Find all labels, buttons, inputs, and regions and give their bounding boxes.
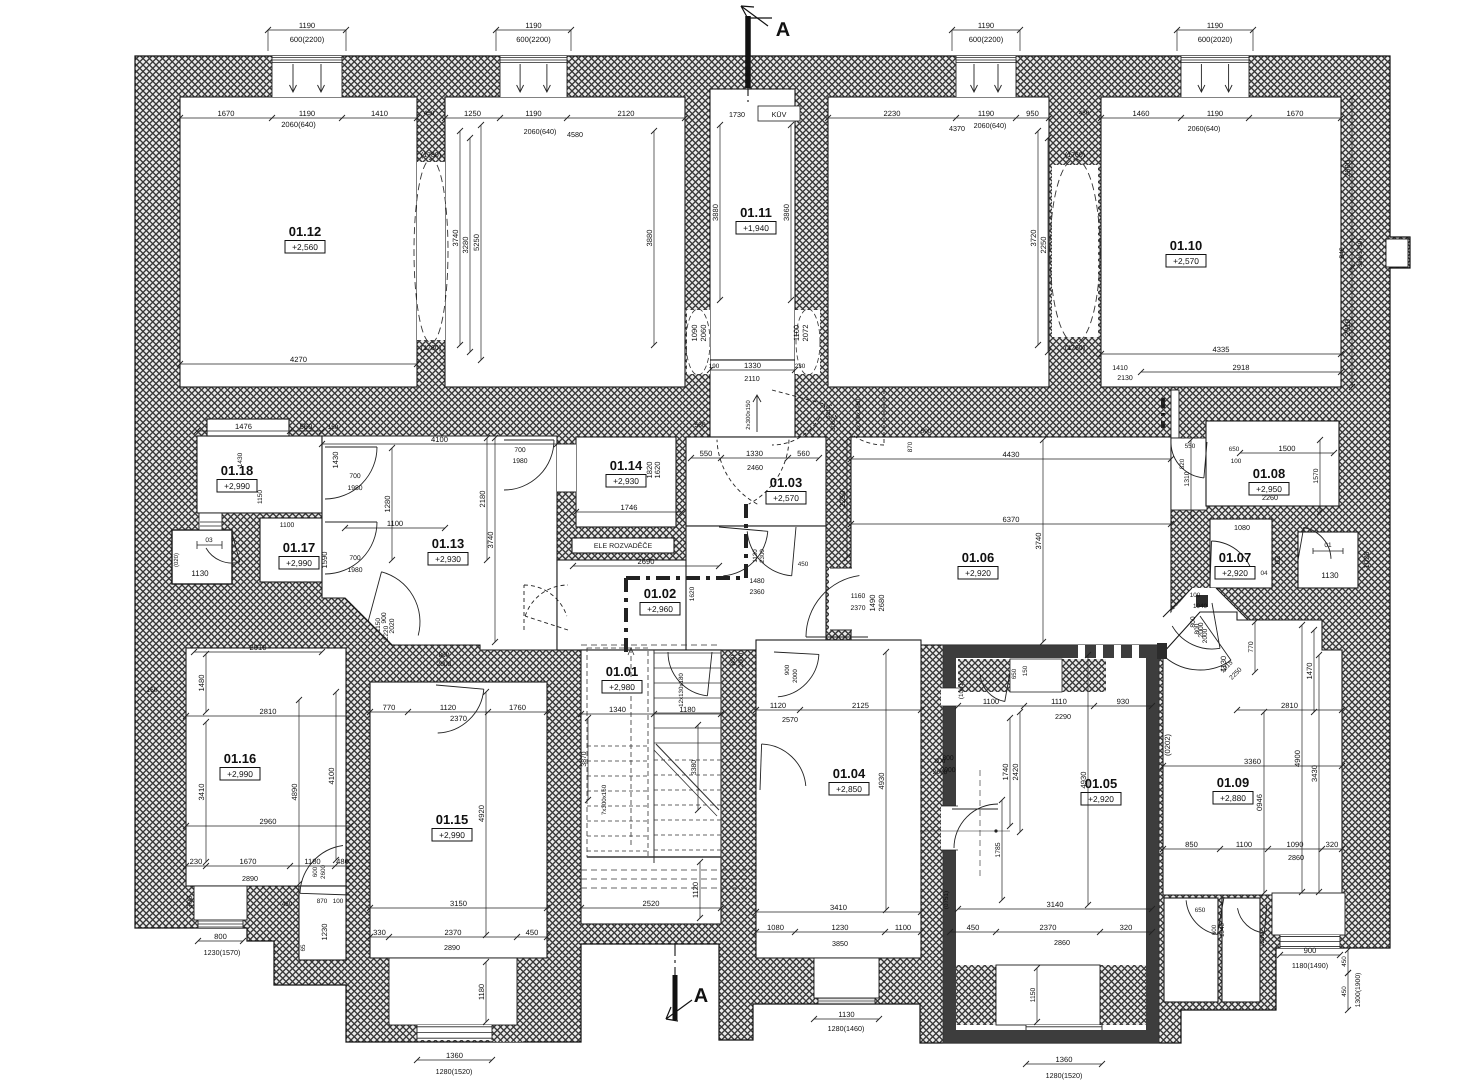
svg-text:+2,920: +2,920 — [1088, 794, 1114, 804]
svg-text:+2,980: +2,980 — [609, 682, 635, 692]
svg-text:3360: 3360 — [1244, 757, 1261, 766]
svg-text:(0202): (0202) — [1163, 734, 1172, 756]
svg-text:850: 850 — [1185, 840, 1198, 849]
svg-text:01.02: 01.02 — [644, 586, 677, 601]
svg-text:2460: 2460 — [747, 463, 763, 472]
svg-text:330: 330 — [373, 928, 386, 937]
svg-text:2918: 2918 — [1233, 363, 1250, 372]
svg-text:2060: 2060 — [699, 325, 708, 342]
svg-text:6370: 6370 — [1003, 515, 1020, 524]
svg-text:1100: 1100 — [280, 522, 295, 529]
svg-text:1310: 1310 — [1184, 471, 1191, 486]
svg-text:190: 190 — [709, 363, 720, 370]
svg-text:4370: 4370 — [949, 124, 965, 133]
svg-text:1330: 1330 — [746, 449, 763, 458]
svg-text:3850: 3850 — [832, 939, 848, 948]
svg-text:2000: 2000 — [792, 669, 799, 683]
svg-text:3740: 3740 — [486, 532, 495, 549]
svg-text:900: 900 — [1304, 946, 1317, 955]
svg-text:150: 150 — [147, 687, 158, 694]
svg-text:1740: 1740 — [1001, 764, 1010, 781]
svg-text:+2,880: +2,880 — [1220, 793, 1246, 803]
svg-text:1090: 1090 — [1287, 840, 1304, 849]
svg-text:950: 950 — [1026, 109, 1039, 118]
svg-text:1280: 1280 — [383, 496, 392, 513]
svg-text:01.14: 01.14 — [610, 458, 643, 473]
svg-text:(1760): (1760) — [1065, 344, 1085, 352]
svg-text:2060(640): 2060(640) — [281, 120, 316, 129]
svg-text:+2,930: +2,930 — [435, 554, 461, 564]
svg-text:1180(1490): 1180(1490) — [1292, 961, 1328, 970]
svg-text:4100: 4100 — [431, 435, 448, 444]
svg-text:6210: 6210 — [825, 405, 832, 419]
svg-text:2290: 2290 — [1055, 712, 1071, 721]
svg-text:1190: 1190 — [978, 109, 994, 118]
svg-text:4270: 4270 — [290, 355, 307, 364]
svg-text:1100: 1100 — [983, 697, 999, 706]
svg-text:450: 450 — [282, 901, 293, 908]
svg-text:800: 800 — [935, 758, 946, 765]
svg-text:1120: 1120 — [770, 701, 786, 710]
svg-text:1180: 1180 — [304, 857, 320, 866]
svg-text:1940: 1940 — [1193, 603, 1208, 610]
svg-text:0946: 0946 — [1255, 794, 1264, 811]
svg-text:3720: 3720 — [1029, 230, 1038, 247]
svg-text:100: 100 — [1231, 458, 1242, 465]
svg-text:770: 770 — [383, 703, 396, 712]
svg-text:+2,570: +2,570 — [1173, 256, 1199, 266]
svg-text:2120: 2120 — [618, 109, 635, 118]
svg-text:2000: 2000 — [437, 661, 452, 668]
svg-text:1190: 1190 — [1207, 109, 1223, 118]
svg-text:(1780): (1780) — [421, 151, 441, 159]
svg-text:4900: 4900 — [1293, 750, 1302, 767]
svg-text:2600: 2600 — [1343, 160, 1352, 177]
svg-text:1180: 1180 — [477, 984, 486, 1000]
svg-text:150: 150 — [1022, 665, 1029, 676]
svg-text:1110: 1110 — [1051, 697, 1067, 706]
svg-text:3880: 3880 — [711, 204, 720, 221]
svg-text:3740: 3740 — [451, 230, 460, 247]
svg-text:3410: 3410 — [830, 903, 847, 912]
svg-text:1360: 1360 — [446, 1051, 463, 1060]
svg-text:4430: 4430 — [1003, 450, 1020, 459]
svg-text:1080: 1080 — [1234, 523, 1250, 532]
svg-text:+2,570: +2,570 — [773, 493, 799, 503]
svg-text:2420: 2420 — [1011, 764, 1020, 781]
svg-text:1980: 1980 — [347, 485, 362, 492]
svg-text:01.07: 01.07 — [1219, 550, 1252, 565]
svg-text:550: 550 — [1185, 443, 1196, 450]
svg-text:1280: 1280 — [1259, 933, 1266, 948]
svg-text:1280(1520): 1280(1520) — [436, 1067, 473, 1076]
svg-text:150: 150 — [328, 424, 339, 431]
svg-text:+2,990: +2,990 — [224, 481, 250, 491]
svg-text:03: 03 — [205, 537, 213, 544]
svg-text:650: 650 — [1011, 668, 1018, 679]
svg-text:1940: 1940 — [1219, 923, 1226, 938]
svg-text:450: 450 — [798, 561, 809, 568]
svg-text:+2,930: +2,930 — [613, 476, 639, 486]
svg-text:(1780): (1780) — [421, 344, 441, 352]
svg-text:1100: 1100 — [387, 519, 403, 528]
svg-text:1620: 1620 — [689, 586, 696, 601]
svg-text:1280(1520): 1280(1520) — [1046, 1071, 1083, 1080]
svg-text:2370: 2370 — [450, 714, 467, 723]
svg-text:320: 320 — [1120, 923, 1133, 932]
svg-text:3380: 3380 — [691, 760, 698, 775]
svg-text:2060(640): 2060(640) — [1188, 124, 1221, 133]
svg-text:3280: 3280 — [461, 237, 470, 254]
svg-text:1730: 1730 — [729, 110, 745, 119]
svg-text:KÜV: KÜV — [772, 110, 787, 119]
svg-text:04: 04 — [1260, 570, 1268, 577]
svg-text:2690: 2690 — [638, 557, 655, 566]
svg-text:3060: 3060 — [830, 417, 837, 431]
svg-text:2x300x150: 2x300x150 — [745, 400, 752, 430]
svg-text:450: 450 — [967, 923, 980, 932]
svg-text:4930: 4930 — [877, 773, 886, 790]
svg-text:2010: 2010 — [250, 643, 267, 652]
svg-text:01.06: 01.06 — [962, 550, 995, 565]
svg-text:4930: 4930 — [1079, 772, 1088, 789]
svg-text:450: 450 — [1341, 986, 1348, 997]
svg-text:900: 900 — [381, 612, 388, 624]
svg-text:100: 100 — [1190, 592, 1201, 599]
svg-text:4890: 4890 — [290, 784, 299, 801]
svg-text:3860: 3860 — [782, 204, 791, 221]
svg-text:1190: 1190 — [299, 109, 315, 118]
svg-text:1480: 1480 — [749, 578, 764, 585]
svg-text:4335: 4335 — [1213, 345, 1230, 354]
svg-text:550: 550 — [700, 449, 713, 458]
svg-text:1120: 1120 — [691, 882, 700, 898]
svg-text:1670: 1670 — [218, 109, 235, 118]
svg-text:2060(640): 2060(640) — [524, 127, 557, 136]
svg-text:1330: 1330 — [744, 361, 761, 370]
svg-text:1230: 1230 — [832, 923, 849, 932]
svg-text:840: 840 — [1339, 247, 1346, 259]
svg-text:2960: 2960 — [260, 817, 277, 826]
svg-text:65: 65 — [300, 944, 307, 952]
svg-text:1785: 1785 — [995, 842, 1002, 857]
svg-text:1150: 1150 — [257, 490, 264, 504]
svg-text:1100: 1100 — [792, 325, 801, 341]
svg-text:+2,990: +2,990 — [286, 558, 312, 568]
svg-text:(1760): (1760) — [1065, 151, 1085, 159]
svg-text:770: 770 — [1248, 641, 1255, 653]
svg-text:2230: 2230 — [884, 109, 901, 118]
svg-text:320: 320 — [1326, 840, 1339, 849]
svg-text:930: 930 — [1117, 697, 1130, 706]
svg-text:+2,960: +2,960 — [647, 604, 673, 614]
svg-text:3150: 3150 — [450, 899, 467, 908]
svg-text:01.04: 01.04 — [833, 766, 866, 781]
svg-text:1190: 1190 — [525, 109, 541, 118]
svg-text:800: 800 — [1190, 616, 1197, 628]
svg-text:2110: 2110 — [744, 374, 759, 383]
svg-text:2000: 2000 — [933, 769, 948, 776]
svg-text:100: 100 — [333, 898, 344, 905]
svg-text:700: 700 — [349, 555, 361, 562]
svg-text:2220: 2220 — [383, 625, 390, 640]
svg-text:7x300x150: 7x300x150 — [601, 784, 608, 815]
svg-text:3870: 3870 — [581, 751, 588, 766]
svg-text:2370: 2370 — [1040, 923, 1057, 932]
svg-text:360(1730): 360(1730) — [1357, 239, 1364, 268]
svg-text:1480: 1480 — [197, 675, 206, 692]
svg-text:2370: 2370 — [850, 605, 865, 612]
svg-text:1460: 1460 — [1133, 109, 1150, 118]
svg-text:1430: 1430 — [331, 452, 340, 469]
svg-text:1410: 1410 — [371, 109, 388, 118]
svg-text:800: 800 — [439, 652, 450, 659]
svg-text:1340: 1340 — [609, 705, 626, 714]
svg-text:1410: 1410 — [1112, 365, 1128, 372]
svg-text:01.13: 01.13 — [432, 536, 465, 551]
svg-text:600(2020): 600(2020) — [1198, 35, 1233, 44]
svg-text:2860: 2860 — [1054, 938, 1070, 947]
svg-text:2000: 2000 — [1198, 622, 1205, 637]
svg-text:2250: 2250 — [838, 491, 847, 508]
svg-text:1300(1900): 1300(1900) — [1355, 973, 1362, 1008]
svg-text:1980: 1980 — [512, 458, 527, 465]
svg-text:+2,560: +2,560 — [292, 242, 318, 252]
svg-text:2360: 2360 — [749, 589, 764, 596]
svg-text:5250: 5250 — [472, 234, 481, 251]
svg-text:ELE ROZVADĚČE: ELE ROZVADĚČE — [594, 541, 653, 550]
svg-text:(020): (020) — [173, 553, 180, 567]
svg-text:2810: 2810 — [1281, 701, 1298, 710]
svg-text:3740: 3740 — [1034, 533, 1043, 550]
svg-text:700: 700 — [514, 447, 526, 454]
svg-text:12x130x180: 12x130x180 — [678, 673, 685, 707]
svg-text:+2,990: +2,990 — [227, 769, 253, 779]
svg-text:560: 560 — [694, 422, 706, 429]
svg-text:650: 650 — [1195, 907, 1206, 914]
svg-text:01.16: 01.16 — [224, 751, 257, 766]
svg-text:2520: 2520 — [643, 899, 660, 908]
svg-text:1360: 1360 — [1056, 1055, 1073, 1064]
svg-text:600(2200): 600(2200) — [516, 35, 551, 44]
svg-text:4580: 4580 — [567, 130, 583, 139]
svg-text:600(2200): 600(2200) — [290, 35, 325, 44]
svg-text:(0751): (0751) — [943, 891, 950, 909]
svg-text:01.15: 01.15 — [436, 812, 469, 827]
svg-text:1130: 1130 — [191, 569, 209, 578]
svg-text:230: 230 — [795, 363, 806, 370]
svg-text:1120: 1120 — [440, 703, 456, 712]
svg-text:2890: 2890 — [242, 874, 258, 883]
svg-text:1100: 1100 — [1236, 840, 1252, 849]
svg-text:+2,850: +2,850 — [836, 784, 862, 794]
svg-text:2130: 2130 — [1117, 375, 1133, 382]
svg-text:870: 870 — [907, 441, 914, 452]
svg-text:2020: 2020 — [389, 618, 396, 633]
svg-text:1190: 1190 — [299, 21, 315, 30]
svg-text:2570: 2570 — [782, 715, 798, 724]
svg-text:450: 450 — [424, 110, 435, 117]
svg-text:A: A — [694, 985, 708, 1007]
svg-text:A: A — [776, 19, 790, 41]
svg-text:870: 870 — [317, 898, 328, 905]
svg-text:900: 900 — [784, 664, 791, 675]
svg-text:1130: 1130 — [752, 549, 759, 563]
svg-text:230: 230 — [190, 857, 203, 866]
svg-text:1620: 1620 — [653, 462, 662, 479]
svg-text:1670: 1670 — [240, 857, 257, 866]
svg-text:2250: 2250 — [1039, 237, 1048, 254]
svg-text:+2,990: +2,990 — [439, 830, 465, 840]
svg-text:01.17: 01.17 — [283, 540, 316, 555]
svg-text:450: 450 — [526, 928, 539, 937]
svg-text:1760: 1760 — [509, 703, 526, 712]
svg-text:1100: 1100 — [895, 923, 911, 932]
svg-text:820: 820 — [1179, 458, 1186, 469]
svg-text:3880: 3880 — [645, 230, 654, 247]
svg-text:1500: 1500 — [1279, 444, 1296, 453]
svg-text:+2,920: +2,920 — [965, 568, 991, 578]
svg-text:02: 02 — [1273, 556, 1282, 564]
svg-text:1570: 1570 — [1313, 468, 1320, 483]
svg-text:2010: 2010 — [1343, 319, 1352, 336]
svg-text:1980: 1980 — [347, 567, 362, 574]
svg-text:1230(1570): 1230(1570) — [204, 948, 241, 957]
svg-text:(1061): (1061) — [958, 681, 965, 699]
svg-text:1080: 1080 — [767, 923, 784, 932]
svg-text:600: 600 — [312, 866, 319, 877]
svg-text:560: 560 — [797, 449, 810, 458]
svg-text:01: 01 — [1324, 542, 1332, 549]
svg-text:1470: 1470 — [1305, 663, 1314, 680]
svg-text:450: 450 — [1079, 110, 1090, 117]
svg-text:4100: 4100 — [327, 768, 336, 785]
svg-text:2810: 2810 — [260, 707, 277, 716]
svg-text:2180: 2180 — [478, 491, 487, 508]
svg-text:1490: 1490 — [868, 595, 877, 612]
svg-text:800: 800 — [730, 654, 737, 665]
svg-text:1746: 1746 — [621, 503, 638, 512]
svg-text:1150: 1150 — [1030, 987, 1037, 1002]
svg-text:3430: 3430 — [1310, 765, 1319, 782]
svg-text:560: 560 — [300, 422, 313, 431]
svg-text:3410: 3410 — [197, 784, 206, 801]
svg-text:01.10: 01.10 — [1170, 238, 1203, 253]
svg-text:1230: 1230 — [320, 924, 329, 941]
svg-text:1190: 1190 — [1207, 21, 1223, 30]
svg-text:1190: 1190 — [978, 21, 994, 30]
svg-text:1430: 1430 — [237, 452, 244, 467]
svg-text:2072: 2072 — [801, 325, 810, 342]
svg-text:300: 300 — [185, 896, 194, 909]
svg-text:01.12: 01.12 — [289, 224, 322, 239]
svg-text:2370: 2370 — [445, 928, 462, 937]
svg-text:01.01: 01.01 — [606, 664, 639, 679]
svg-text:1190: 1190 — [525, 21, 541, 30]
svg-text:2860: 2860 — [1288, 853, 1304, 862]
svg-text:1130: 1130 — [1321, 571, 1339, 580]
svg-text:1160: 1160 — [851, 593, 866, 600]
svg-text:01.05: 01.05 — [1085, 776, 1118, 791]
svg-text:1590: 1590 — [320, 552, 329, 569]
svg-text:2680: 2680 — [877, 595, 886, 612]
svg-text:700: 700 — [349, 473, 361, 480]
svg-text:4920: 4920 — [477, 805, 486, 822]
svg-text:1150: 1150 — [375, 618, 382, 632]
svg-text:01.09: 01.09 — [1217, 775, 1250, 790]
svg-text:2125: 2125 — [852, 701, 869, 710]
svg-text:2260: 2260 — [1262, 493, 1278, 502]
svg-text:01.11: 01.11 — [740, 205, 772, 220]
svg-text:01.08: 01.08 — [1253, 466, 1286, 481]
svg-text:650: 650 — [1229, 446, 1240, 453]
svg-text:3140: 3140 — [1047, 900, 1064, 909]
svg-text:2600: 2600 — [320, 865, 327, 880]
svg-text:1670: 1670 — [1287, 109, 1304, 118]
svg-text:600: 600 — [1211, 924, 1218, 935]
svg-text:1130: 1130 — [1219, 656, 1228, 672]
svg-text:+2,920: +2,920 — [1222, 568, 1248, 578]
svg-text:1090: 1090 — [690, 325, 699, 342]
svg-text:500: 500 — [921, 428, 932, 435]
svg-text:1250: 1250 — [464, 109, 481, 118]
svg-text:1280(1460): 1280(1460) — [828, 1024, 865, 1033]
svg-text:1476: 1476 — [235, 422, 252, 431]
svg-text:2000: 2000 — [738, 652, 745, 667]
svg-text:2x700x1950: 2x700x1950 — [855, 398, 862, 431]
svg-text:2300: 2300 — [759, 549, 766, 563]
svg-text:+1,940: +1,940 — [743, 223, 769, 233]
svg-text:2890: 2890 — [444, 943, 460, 952]
svg-text:600(2200): 600(2200) — [969, 35, 1004, 44]
svg-text:2060(640): 2060(640) — [974, 121, 1007, 130]
svg-text:450: 450 — [1341, 956, 1348, 967]
svg-text:1130: 1130 — [838, 1010, 854, 1019]
svg-text:1020: 1020 — [1362, 552, 1371, 569]
svg-text:800: 800 — [214, 932, 227, 941]
svg-text:01.03: 01.03 — [770, 475, 803, 490]
